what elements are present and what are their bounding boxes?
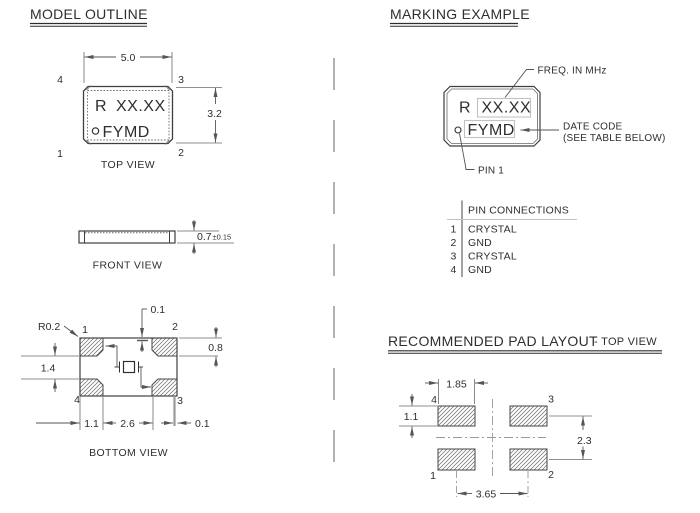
pad-layout-title: RECOMMENDED PAD LAYOUT xyxy=(388,333,598,349)
dim-pad-width: 1.85 xyxy=(446,379,467,391)
pad-1 xyxy=(438,449,475,470)
pin-connection: CRYSTAL xyxy=(468,251,517,263)
section-marking-example: MARKING EXAMPLE xyxy=(390,6,530,26)
dim-top-offset: 0.1 xyxy=(151,304,166,316)
marking-prefix: R xyxy=(459,100,471,117)
bottom-view-drawing: R0.2 1 2 4 3 0.1 0.8 1.4 1.1 2.6 xyxy=(21,304,223,459)
dim-horizontal-pitch: 3.65 xyxy=(476,489,497,501)
pin-connection: GND xyxy=(468,264,492,276)
pin-label-3: 3 xyxy=(177,395,183,407)
pin-connection: GND xyxy=(468,237,492,249)
pin-number: 3 xyxy=(450,251,456,263)
section-pad-layout: RECOMMENDED PAD LAYOUT - TOP VIEW xyxy=(388,333,662,353)
pin-label-4: 4 xyxy=(431,394,437,406)
marking-datecode: FYMD xyxy=(468,122,515,139)
pin-label-2: 2 xyxy=(172,321,178,333)
dim-width: 5.0 xyxy=(121,52,136,64)
pin-label-4: 4 xyxy=(74,394,80,406)
marking-freq: XX.XX xyxy=(482,100,532,117)
pad-4 xyxy=(438,406,475,426)
dim-pad-height: 0.8 xyxy=(208,342,223,354)
pin-label-2: 2 xyxy=(548,469,554,481)
pin-number: 2 xyxy=(450,237,456,249)
dim-vertical-pitch: 2.3 xyxy=(577,435,592,447)
pad-layout-drawing: 4 3 1 2 1.85 1.1 2.3 3.65 xyxy=(399,379,592,501)
corner-radius-label: R0.2 xyxy=(38,321,60,333)
pin-number: 1 xyxy=(450,224,456,236)
technical-drawing-canvas: MODEL OUTLINE 5.0 4 3 1 2 R XX.XX FYMD 3… xyxy=(0,0,700,513)
pin-label-4: 4 xyxy=(57,74,63,86)
datecode-callout-label-1: DATE CODE xyxy=(563,122,623,133)
dim-side-offset: 0.1 xyxy=(195,418,210,430)
pad-2 xyxy=(510,449,547,470)
pad-2 xyxy=(152,338,177,356)
table-row: 1 CRYSTAL xyxy=(450,224,516,236)
pin-label-2: 2 xyxy=(178,147,184,159)
model-outline-title: MODEL OUTLINE xyxy=(30,6,148,22)
dim-thickness: 0.7 xyxy=(197,231,212,243)
pin-label-3: 3 xyxy=(178,74,184,86)
pin-label-1: 1 xyxy=(430,470,436,482)
marking-example-drawing: R XX.XX FYMD FREQ. IN MHz DATE CODE (SEE… xyxy=(444,66,666,177)
pad-3 xyxy=(510,406,547,426)
dim-pad-span: 2.6 xyxy=(120,418,135,430)
pad-4 xyxy=(80,379,103,396)
pad-3 xyxy=(152,379,177,396)
pin-label-1: 1 xyxy=(57,148,63,160)
datasheet-drawing-page: MODEL OUTLINE 5.0 4 3 1 2 R XX.XX FYMD 3… xyxy=(0,0,700,513)
table-row: 3 CRYSTAL xyxy=(450,251,516,263)
front-view-label: FRONT VIEW xyxy=(93,260,163,272)
table-row: 2 GND xyxy=(450,237,492,249)
pin-connection: CRYSTAL xyxy=(468,224,517,236)
marking-freq: XX.XX xyxy=(116,98,166,115)
pad-1 xyxy=(80,338,103,356)
dim-pad-height: 1.1 xyxy=(404,411,419,423)
pin1-callout-label: PIN 1 xyxy=(478,166,504,177)
top-view-label: TOP VIEW xyxy=(101,159,155,171)
pin-label-1: 1 xyxy=(82,324,88,336)
top-view-drawing: 5.0 4 3 1 2 R XX.XX FYMD 3.2 TOP VIEW xyxy=(57,52,222,171)
pin-number: 4 xyxy=(450,264,456,276)
table-row: 4 GND xyxy=(450,264,492,276)
bottom-view-label: BOTTOM VIEW xyxy=(89,447,168,459)
freq-callout-label: FREQ. IN MHz xyxy=(538,66,607,77)
table-title: PIN CONNECTIONS xyxy=(468,205,569,217)
dim-thickness-tolerance: ±0.15 xyxy=(213,233,232,242)
radius-leader xyxy=(64,326,78,337)
pad-layout-title-suffix: - TOP VIEW xyxy=(594,336,657,348)
marking-prefix: R xyxy=(95,98,107,115)
pin-label-3: 3 xyxy=(548,394,554,406)
dim-pad-gap: 1.4 xyxy=(41,363,56,375)
marking-example-title: MARKING EXAMPLE xyxy=(390,6,530,22)
datecode-callout-label-2: (SEE TABLE BELOW) xyxy=(563,133,666,144)
dim-pad-width: 1.1 xyxy=(84,418,99,430)
section-model-outline: MODEL OUTLINE xyxy=(30,6,148,26)
dim-height: 3.2 xyxy=(207,108,222,120)
front-view-drawing: 0.7 ±0.15 FRONT VIEW xyxy=(79,220,234,272)
pin-connections-table: PIN CONNECTIONS 1 CRYSTAL 2 GND 3 CRYSTA… xyxy=(447,201,577,278)
marking-datecode: FYMD xyxy=(103,124,150,141)
